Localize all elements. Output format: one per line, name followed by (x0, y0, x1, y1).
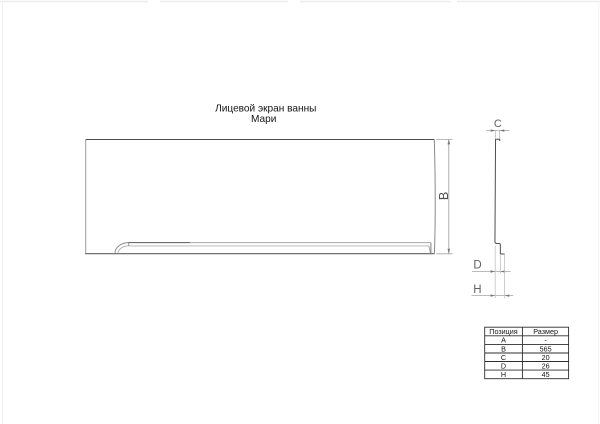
svg-text:45: 45 (542, 370, 550, 379)
svg-text:C: C (494, 118, 502, 130)
svg-text:H: H (473, 284, 481, 296)
svg-text:H: H (501, 370, 506, 379)
svg-text:B: B (437, 192, 451, 200)
svg-text:D: D (473, 259, 481, 271)
svg-text:Мари: Мари (251, 114, 276, 125)
